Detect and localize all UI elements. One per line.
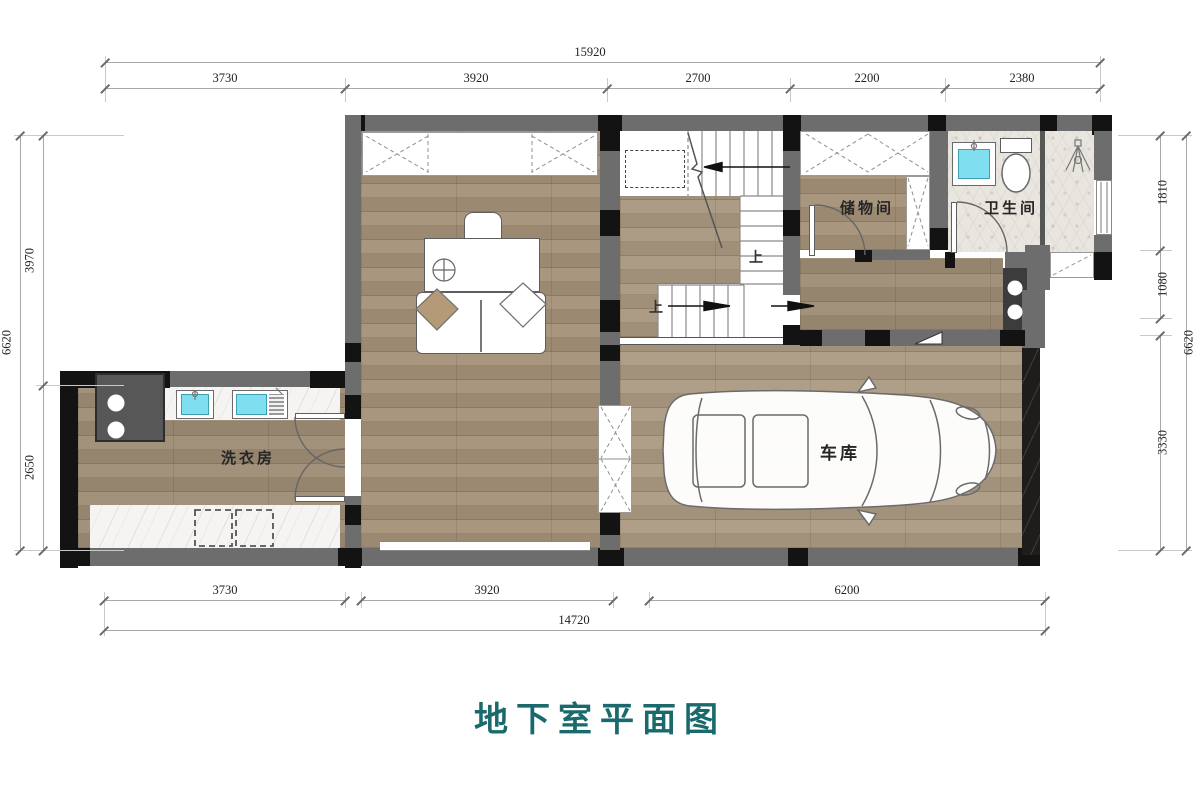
dim-label: 2380: [982, 71, 1062, 86]
extension-line: [1118, 550, 1192, 551]
dim-label: 3970: [23, 221, 38, 301]
extension-line: [790, 78, 791, 102]
dimension-line: [20, 135, 21, 550]
window-mullions: [1101, 182, 1107, 233]
dimension-line: [361, 600, 613, 601]
desk-globe: [433, 259, 455, 281]
dim-label-right-total: 6620: [1182, 303, 1197, 383]
plan-linework: [0, 0, 1200, 800]
dimension-line: [43, 135, 44, 550]
dim-label: 3730: [185, 71, 265, 86]
dim-label: 2700: [658, 71, 738, 86]
dim-label: 2650: [23, 428, 38, 508]
room-label-garage: 车库: [790, 439, 890, 464]
dim-label-top-total: 15920: [540, 45, 640, 60]
dim-label: 3730: [185, 583, 265, 598]
dimension-line: [649, 600, 1045, 601]
room-label-storage: 储物间: [817, 197, 917, 218]
faucet-icons: [193, 140, 977, 400]
shower-head-icon: [1066, 140, 1090, 172]
dimension-line: [104, 600, 345, 601]
stair-break-line: [688, 133, 722, 248]
dimension-line: [105, 88, 1100, 89]
dim-label-bottom-total: 14720: [524, 613, 624, 628]
toilet-bowl: [1002, 154, 1030, 192]
dim-label: 3920: [447, 583, 527, 598]
stair-up-label: 上: [749, 247, 763, 267]
extension-line: [345, 78, 346, 102]
dim-label: 6200: [807, 583, 887, 598]
extension-line: [945, 78, 946, 102]
dim-label: 1080: [1156, 245, 1171, 325]
dimension-line: [105, 62, 1100, 63]
threshold-marker: [915, 332, 942, 344]
floor-plan-canvas: 15920 3730 3920 2700 2200 2380 3730 3920…: [0, 0, 1200, 800]
extension-line: [1118, 135, 1192, 136]
extension-line: [1140, 335, 1172, 336]
extension-line: [36, 385, 124, 386]
appliance-placeholders: [195, 510, 273, 546]
extension-line: [607, 78, 608, 102]
stair-up-label: 上: [649, 297, 663, 317]
drawing-title: 地下室平面图: [0, 692, 1200, 741]
extension-line: [14, 550, 124, 551]
extension-line: [14, 135, 124, 136]
lightwell-hatch: [1053, 255, 1091, 275]
dim-label: 3920: [436, 71, 516, 86]
dim-label: 3330: [1156, 403, 1171, 483]
stair-direction-arrows: [668, 163, 814, 311]
dimension-line: [104, 630, 1045, 631]
room-label-laundry: 洗衣房: [198, 447, 298, 468]
dim-label: 2200: [827, 71, 907, 86]
dim-label-left-total: 6620: [0, 303, 15, 383]
dim-label: 1810: [1156, 153, 1171, 233]
sofa-pillows: [416, 283, 546, 330]
room-label-bathroom: 卫生间: [961, 197, 1061, 218]
